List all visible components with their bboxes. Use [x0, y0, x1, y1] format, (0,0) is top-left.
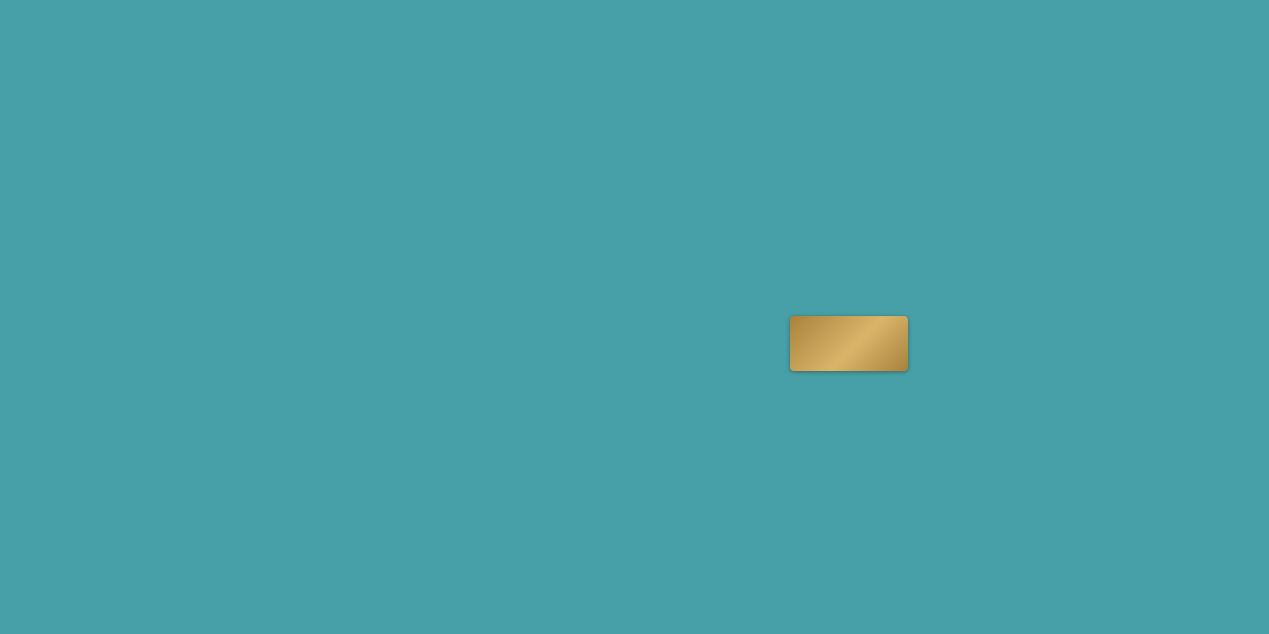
map-canvas [0, 0, 1269, 634]
map-overlay [0, 0, 1269, 634]
project-marker [790, 316, 908, 371]
